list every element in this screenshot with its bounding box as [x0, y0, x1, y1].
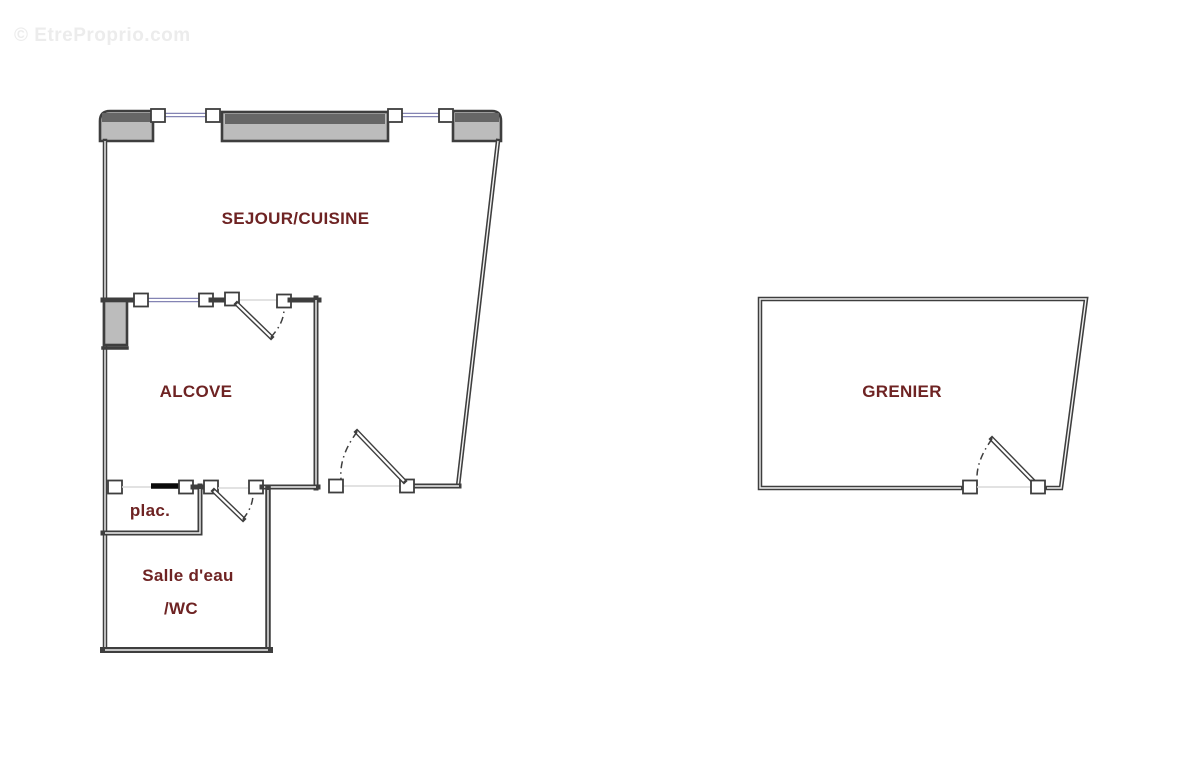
room-label-alcove: ALCOVE	[146, 382, 246, 402]
floorplan-drawing	[0, 0, 1200, 759]
room-label-sejour-cuisine: SEJOUR/CUISINE	[193, 209, 398, 229]
facade-right-block	[453, 111, 501, 141]
sejour-door-swing-icon	[329, 432, 414, 493]
chimney-block	[103, 301, 127, 348]
alcove-door-swing-icon	[225, 293, 291, 338]
room-label-placard: plac.	[108, 501, 192, 521]
room-label-salle-eau: Salle d'eau	[126, 566, 250, 586]
room-label-wc: /WC	[139, 599, 223, 619]
window-top-left	[151, 109, 220, 122]
grenier-door-swing-icon	[963, 439, 1045, 494]
facade-left-block	[100, 111, 153, 141]
window-top-right	[388, 109, 453, 122]
facade-center-block	[222, 112, 388, 141]
room-label-grenier: GRENIER	[830, 382, 974, 402]
floorplan-page: © EtreProprio.com	[0, 0, 1200, 759]
salle-eau-door-swing-icon	[204, 481, 263, 520]
